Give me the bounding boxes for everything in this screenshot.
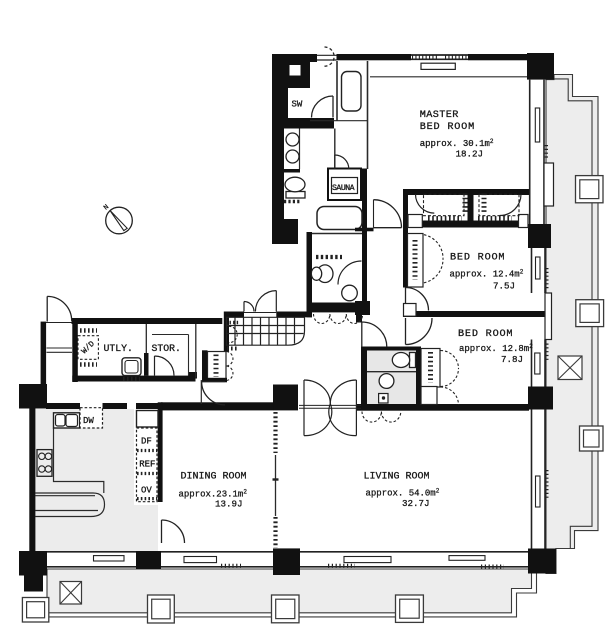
svg-text:SW: SW bbox=[292, 100, 303, 110]
svg-text:7.8J: 7.8J bbox=[501, 354, 523, 365]
svg-text:STOR.: STOR. bbox=[152, 343, 181, 354]
svg-text:REF: REF bbox=[139, 460, 155, 470]
svg-text:MASTER: MASTER bbox=[420, 110, 459, 121]
svg-text:SAUNA: SAUNA bbox=[332, 184, 355, 193]
svg-text:DW: DW bbox=[83, 416, 94, 426]
svg-text:DF: DF bbox=[141, 437, 152, 447]
svg-text:18.2J: 18.2J bbox=[456, 148, 484, 159]
svg-text:approx. 30.1m2: approx. 30.1m2 bbox=[420, 138, 494, 149]
svg-text:OV: OV bbox=[141, 485, 152, 495]
svg-text:BED ROOM: BED ROOM bbox=[458, 329, 513, 340]
svg-text:approx. 54.0m2: approx. 54.0m2 bbox=[366, 487, 440, 498]
svg-text:7.5J: 7.5J bbox=[493, 281, 515, 292]
svg-text:UTLY.: UTLY. bbox=[104, 343, 133, 354]
svg-text:13.9J: 13.9J bbox=[215, 499, 243, 510]
svg-text:approx. 12.8m2: approx. 12.8m2 bbox=[459, 343, 533, 354]
svg-text:BED ROOM: BED ROOM bbox=[450, 253, 505, 264]
svg-text:32.7J: 32.7J bbox=[402, 498, 430, 509]
svg-text:DINING ROOM: DINING ROOM bbox=[181, 472, 247, 483]
svg-text:BED ROOM: BED ROOM bbox=[420, 122, 475, 133]
svg-text:LIVING ROOM: LIVING ROOM bbox=[364, 472, 430, 483]
svg-text:approx. 12.4m2: approx. 12.4m2 bbox=[450, 268, 524, 279]
